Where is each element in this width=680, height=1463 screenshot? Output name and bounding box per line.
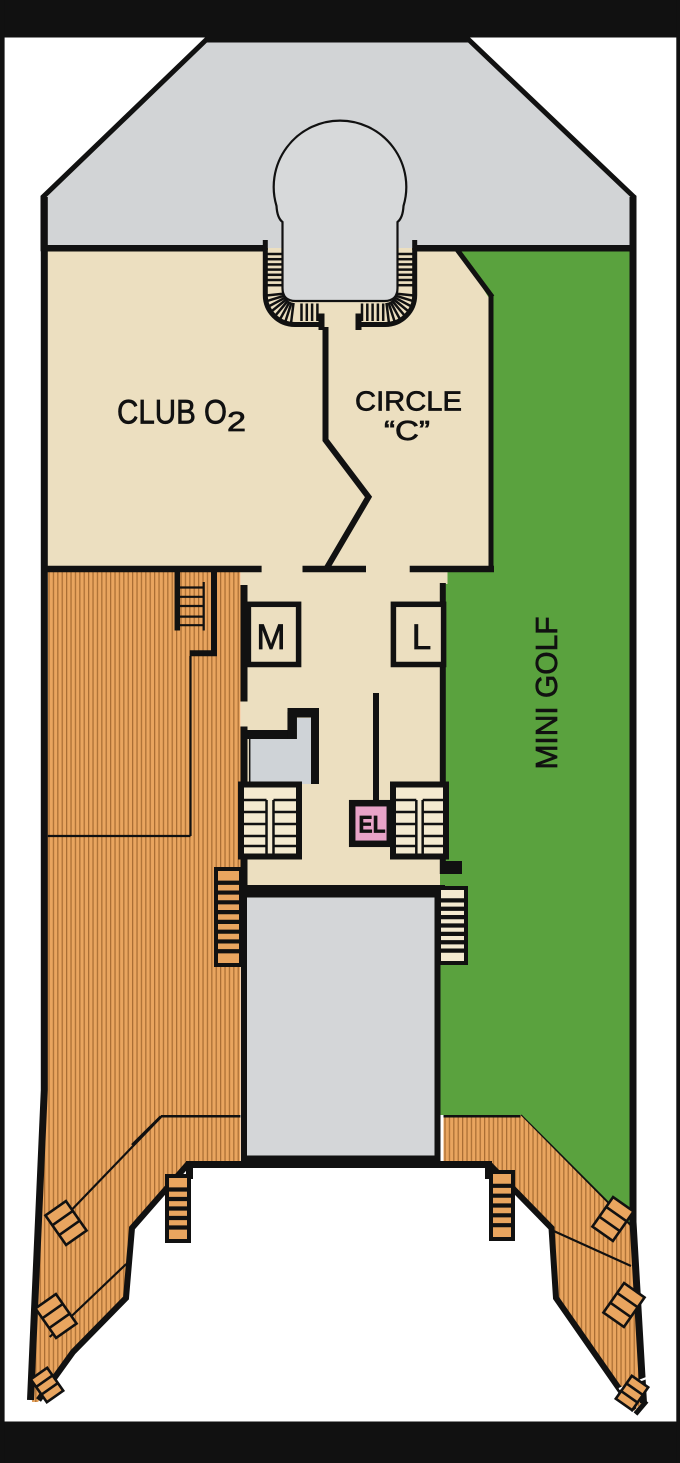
svg-text:EL: EL bbox=[359, 812, 386, 839]
svg-text:CLUB O: CLUB O bbox=[117, 394, 227, 432]
svg-text:2: 2 bbox=[227, 406, 246, 437]
svg-text:“C”: “C” bbox=[384, 415, 430, 446]
svg-text:MINI GOLF: MINI GOLF bbox=[529, 617, 564, 770]
svg-text:M: M bbox=[256, 618, 285, 657]
svg-text:CIRCLE: CIRCLE bbox=[355, 386, 462, 417]
svg-text:L: L bbox=[412, 618, 431, 657]
